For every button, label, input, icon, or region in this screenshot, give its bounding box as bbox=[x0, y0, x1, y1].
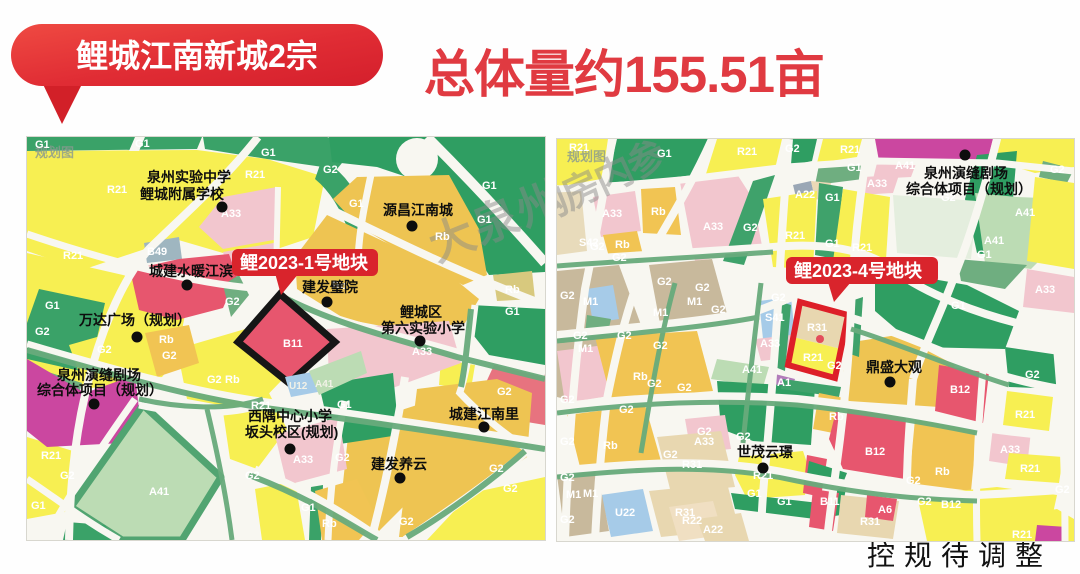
svg-text:G1: G1 bbox=[847, 162, 862, 174]
svg-text:G2: G2 bbox=[785, 143, 800, 155]
svg-text:综合体项目（规划）: 综合体项目（规划） bbox=[37, 382, 163, 398]
svg-text:A33: A33 bbox=[694, 436, 714, 448]
svg-text:泉州实验中学: 泉州实验中学 bbox=[147, 169, 231, 185]
svg-text:A41: A41 bbox=[315, 379, 334, 390]
svg-text:G1: G1 bbox=[301, 502, 316, 514]
svg-text:R21: R21 bbox=[840, 144, 860, 156]
svg-text:泉州演缝剧场: 泉州演缝剧场 bbox=[924, 165, 1008, 181]
svg-text:G2: G2 bbox=[97, 344, 112, 356]
svg-text:R21: R21 bbox=[41, 450, 61, 462]
svg-text:西隅中心小学: 西隅中心小学 bbox=[248, 408, 332, 424]
svg-text:G2: G2 bbox=[711, 304, 726, 316]
svg-text:A41: A41 bbox=[984, 235, 1004, 247]
svg-text:G2: G2 bbox=[560, 436, 575, 448]
svg-text:G2: G2 bbox=[225, 296, 240, 308]
svg-text:城建水暖江滨: 城建水暖江滨 bbox=[149, 263, 233, 279]
svg-text:B12: B12 bbox=[950, 384, 970, 396]
svg-text:G1: G1 bbox=[977, 249, 992, 261]
svg-text:Rb: Rb bbox=[829, 411, 844, 423]
svg-text:A33: A33 bbox=[1035, 284, 1055, 296]
svg-text:建发璧院: 建发璧院 bbox=[302, 279, 358, 295]
svg-text:Rb: Rb bbox=[615, 239, 630, 251]
svg-text:R21: R21 bbox=[245, 169, 265, 181]
svg-text:B11: B11 bbox=[283, 338, 303, 350]
svg-text:G2: G2 bbox=[560, 514, 575, 526]
svg-text:G2: G2 bbox=[573, 330, 588, 342]
svg-text:G2: G2 bbox=[612, 252, 627, 264]
svg-text:第六实验小学: 第六实验小学 bbox=[381, 320, 465, 336]
svg-text:Rb: Rb bbox=[633, 371, 648, 383]
svg-text:R21: R21 bbox=[569, 142, 589, 154]
svg-text:城建江南里: 城建江南里 bbox=[449, 406, 519, 422]
svg-text:R21: R21 bbox=[785, 230, 805, 242]
svg-text:R21: R21 bbox=[1012, 529, 1032, 541]
svg-text:B12: B12 bbox=[865, 446, 885, 458]
svg-text:G2: G2 bbox=[1025, 369, 1040, 381]
svg-text:泉州演缝剧场: 泉州演缝剧场 bbox=[57, 367, 141, 383]
svg-text:B12: B12 bbox=[941, 499, 961, 511]
svg-text:U12: U12 bbox=[289, 381, 308, 392]
svg-text:G2: G2 bbox=[335, 452, 350, 464]
svg-text:A33: A33 bbox=[602, 208, 622, 220]
svg-text:G2: G2 bbox=[827, 360, 842, 372]
svg-text:G2: G2 bbox=[657, 276, 672, 288]
svg-text:R21: R21 bbox=[107, 184, 127, 196]
svg-text:R21: R21 bbox=[852, 242, 872, 254]
svg-text:G2: G2 bbox=[677, 382, 692, 394]
svg-text:G2: G2 bbox=[162, 350, 177, 362]
svg-text:鲤2023-4号地块: 鲤2023-4号地块 bbox=[793, 260, 923, 281]
svg-text:Rb: Rb bbox=[505, 284, 520, 296]
svg-text:G2: G2 bbox=[503, 483, 518, 495]
svg-text:R31: R31 bbox=[860, 516, 880, 528]
svg-text:G2: G2 bbox=[560, 472, 575, 484]
svg-text:Rb: Rb bbox=[159, 334, 174, 346]
svg-text:鲤城区: 鲤城区 bbox=[399, 304, 442, 320]
svg-text:G2: G2 bbox=[399, 516, 414, 528]
svg-text:G2: G2 bbox=[560, 290, 575, 302]
svg-text:Rb: Rb bbox=[225, 374, 240, 386]
svg-text:建发养云: 建发养云 bbox=[371, 456, 427, 472]
svg-text:A41: A41 bbox=[742, 364, 762, 376]
svg-text:G1: G1 bbox=[45, 300, 60, 312]
svg-text:源昌江南城: 源昌江南城 bbox=[383, 202, 453, 218]
svg-text:G1: G1 bbox=[349, 198, 364, 210]
svg-text:Rb: Rb bbox=[435, 231, 450, 243]
svg-text:A41: A41 bbox=[895, 160, 915, 172]
svg-text:A41: A41 bbox=[149, 486, 169, 498]
svg-text:R22: R22 bbox=[682, 515, 702, 527]
svg-text:A33: A33 bbox=[293, 454, 313, 466]
svg-text:Rb: Rb bbox=[603, 440, 618, 452]
svg-text:G2: G2 bbox=[489, 463, 504, 475]
svg-text:U22: U22 bbox=[615, 507, 635, 519]
svg-text:G2: G2 bbox=[35, 326, 50, 338]
svg-text:G1: G1 bbox=[657, 148, 672, 160]
svg-text:G2: G2 bbox=[1050, 164, 1065, 176]
svg-text:R21: R21 bbox=[803, 352, 823, 364]
svg-text:G2: G2 bbox=[906, 475, 921, 487]
svg-text:G2: G2 bbox=[207, 374, 222, 386]
svg-text:G1: G1 bbox=[261, 147, 276, 159]
svg-text:A6: A6 bbox=[878, 504, 892, 516]
svg-text:G1: G1 bbox=[35, 139, 50, 151]
svg-text:A33: A33 bbox=[1000, 444, 1020, 456]
svg-text:综合体项目（规划）: 综合体项目（规划） bbox=[906, 181, 1032, 197]
svg-text:G1: G1 bbox=[477, 214, 492, 226]
svg-text:G2: G2 bbox=[245, 470, 260, 482]
svg-text:A1: A1 bbox=[777, 377, 791, 389]
svg-text:A22: A22 bbox=[703, 524, 723, 536]
svg-text:G2: G2 bbox=[647, 378, 662, 390]
svg-text:Rb: Rb bbox=[322, 518, 337, 530]
svg-text:M1: M1 bbox=[653, 307, 668, 319]
svg-text:G2: G2 bbox=[590, 241, 605, 253]
svg-text:M1: M1 bbox=[687, 296, 702, 308]
svg-text:A33: A33 bbox=[760, 338, 780, 350]
svg-text:M1: M1 bbox=[583, 488, 598, 500]
svg-text:G2: G2 bbox=[695, 282, 710, 294]
svg-text:A22: A22 bbox=[795, 189, 815, 201]
svg-text:鼎盛大观: 鼎盛大观 bbox=[866, 359, 922, 375]
svg-text:G2: G2 bbox=[771, 292, 786, 304]
svg-text:G2: G2 bbox=[617, 330, 632, 342]
svg-text:G1: G1 bbox=[951, 300, 966, 312]
svg-text:R21: R21 bbox=[1015, 409, 1035, 421]
svg-text:G2: G2 bbox=[560, 394, 575, 406]
svg-text:M1: M1 bbox=[566, 489, 581, 501]
svg-text:A33: A33 bbox=[703, 221, 723, 233]
svg-text:Rb: Rb bbox=[935, 466, 950, 478]
svg-text:A41: A41 bbox=[1015, 207, 1035, 219]
svg-text:R31: R31 bbox=[682, 459, 702, 471]
svg-text:G2: G2 bbox=[60, 470, 75, 482]
svg-text:坂头校区(规划): 坂头校区(规划) bbox=[245, 424, 338, 440]
svg-text:G1: G1 bbox=[482, 180, 497, 192]
svg-text:鲤城附属学校: 鲤城附属学校 bbox=[139, 186, 225, 202]
svg-text:M1: M1 bbox=[578, 343, 593, 355]
svg-text:G1: G1 bbox=[135, 138, 150, 150]
svg-text:A33: A33 bbox=[412, 346, 432, 358]
svg-text:S41: S41 bbox=[765, 312, 785, 324]
svg-text:G2: G2 bbox=[663, 449, 678, 461]
svg-text:G2: G2 bbox=[743, 222, 758, 234]
svg-text:G1: G1 bbox=[31, 500, 46, 512]
svg-text:G1: G1 bbox=[505, 306, 520, 318]
svg-text:G2: G2 bbox=[323, 164, 338, 176]
svg-text:G1: G1 bbox=[825, 238, 840, 250]
svg-text:G2: G2 bbox=[497, 386, 512, 398]
svg-text:G1: G1 bbox=[825, 192, 840, 204]
svg-text:G2: G2 bbox=[653, 340, 668, 352]
svg-text:Rb: Rb bbox=[651, 206, 666, 218]
svg-text:G2: G2 bbox=[619, 404, 634, 416]
svg-text:R21: R21 bbox=[1020, 463, 1040, 475]
svg-text:R21: R21 bbox=[737, 146, 757, 158]
svg-text:M1: M1 bbox=[583, 296, 598, 308]
svg-text:G1: G1 bbox=[777, 496, 792, 508]
svg-text:G1: G1 bbox=[747, 488, 762, 500]
svg-text:鲤2023-1号地块: 鲤2023-1号地块 bbox=[239, 252, 369, 273]
svg-text:R21: R21 bbox=[63, 250, 83, 262]
svg-text:万达广场（规划）: 万达广场（规划） bbox=[78, 312, 191, 328]
svg-text:A33: A33 bbox=[867, 178, 887, 190]
svg-text:鲤城江南新城2宗: 鲤城江南新城2宗 bbox=[76, 38, 318, 74]
svg-text:G2: G2 bbox=[917, 496, 932, 508]
svg-text:B11: B11 bbox=[820, 496, 840, 508]
svg-text:G1: G1 bbox=[337, 399, 352, 411]
svg-text:G2: G2 bbox=[1055, 484, 1070, 496]
svg-text:世茂云璟: 世茂云璟 bbox=[737, 444, 793, 460]
svg-text:B49: B49 bbox=[147, 246, 167, 258]
svg-text:G2: G2 bbox=[736, 431, 751, 443]
